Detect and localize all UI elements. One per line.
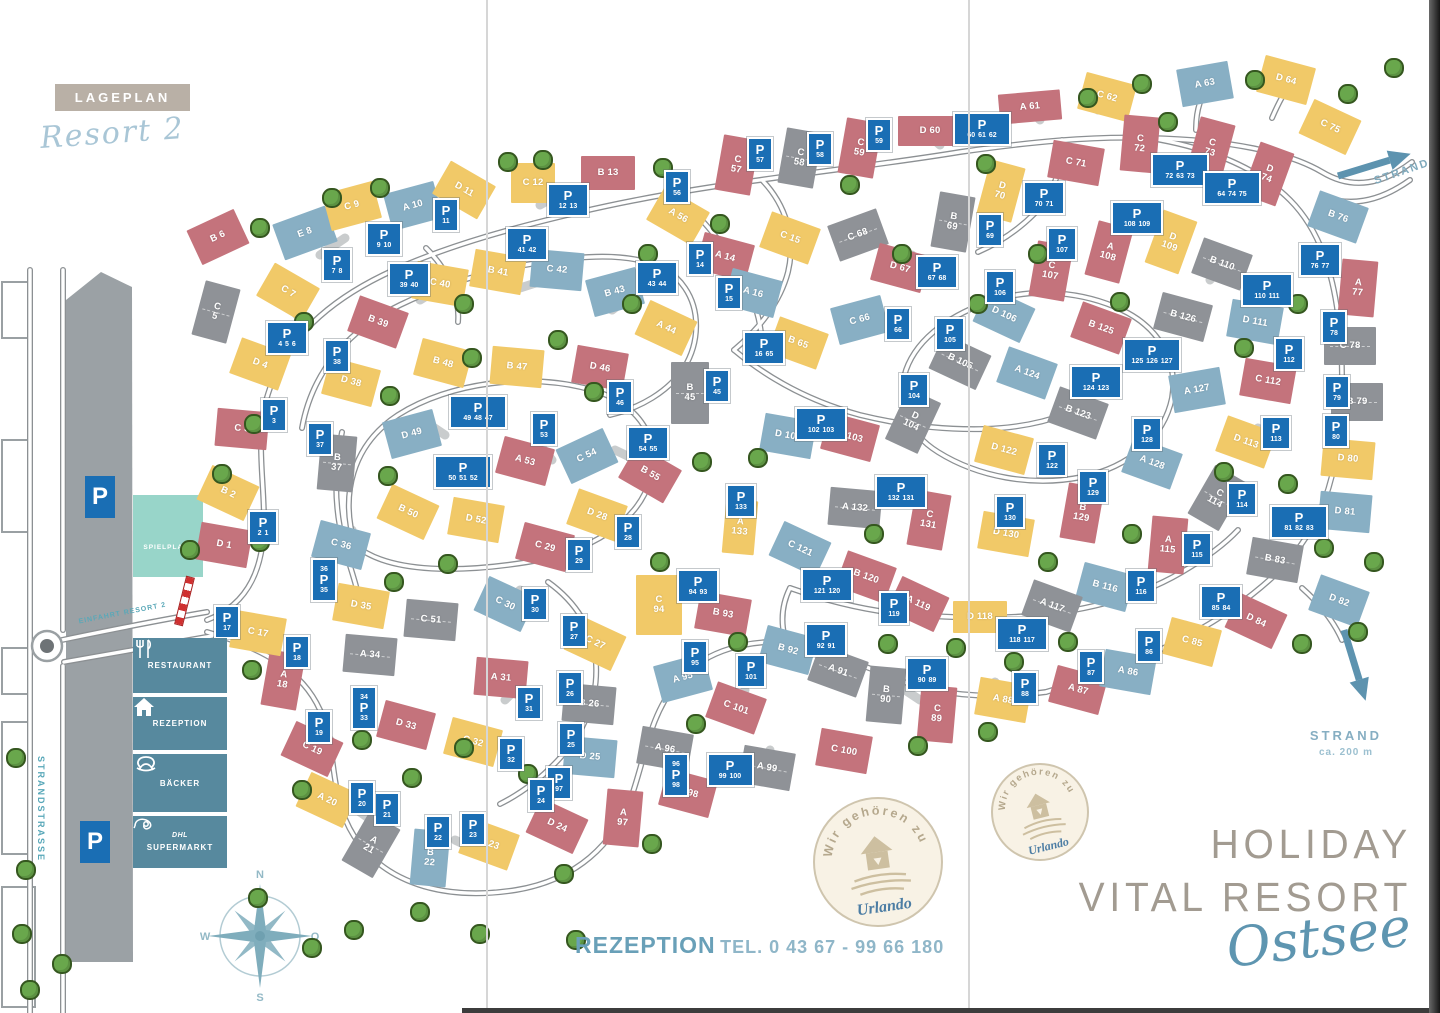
- street-label: STRANDSTRASSE: [36, 756, 46, 862]
- tree-icon: [1110, 292, 1130, 312]
- parking-sign-9-10: P9 10: [366, 222, 402, 256]
- parking-sign-118-117: P118 117: [996, 617, 1049, 651]
- tree-icon: [710, 214, 730, 234]
- parking-sign-107: P107: [1047, 227, 1078, 261]
- parking-sign-67-68: P67 68: [916, 255, 958, 289]
- tree-icon: [1278, 474, 1298, 494]
- parking-sign-119: P119: [879, 591, 910, 625]
- fold-line: [486, 0, 488, 1013]
- posthorn-icon: [133, 816, 155, 830]
- tree-icon: [1234, 338, 1254, 358]
- parking-sign-116: P116: [1126, 569, 1157, 603]
- parking-sign-108-109: P108 109: [1111, 201, 1164, 235]
- parking-sign-4-5-6: P4 5 6: [266, 321, 308, 355]
- parking-sign-22: P22: [425, 815, 451, 849]
- compass-s: S: [256, 992, 263, 1002]
- parking-sign-30: P30: [522, 587, 548, 621]
- tree-icon: [976, 154, 996, 174]
- tree-icon: [402, 768, 422, 788]
- parking-sign-57: P57: [747, 137, 773, 171]
- parking-sign-20: P20: [349, 781, 375, 815]
- tree-icon: [250, 218, 270, 238]
- parking-sign-66: P66: [885, 307, 911, 341]
- parking-sign-19: P19: [306, 710, 332, 744]
- tree-icon: [978, 722, 998, 742]
- tree-icon: [180, 540, 200, 560]
- parking-sign-26: P26: [557, 671, 583, 705]
- facility-label: RESTAURANT: [148, 661, 213, 670]
- parking-sign-28: P28: [615, 515, 641, 549]
- parking-sign-132-131: P132 131: [875, 475, 928, 509]
- parking-sign-59: P59: [866, 118, 892, 152]
- parking-sign-49-48-47: P49 48 47: [449, 395, 507, 429]
- tree-icon: [1338, 84, 1358, 104]
- building-a-97: A 97: [603, 789, 644, 848]
- tree-icon: [498, 152, 518, 172]
- parking-sign-15: P15: [716, 276, 742, 310]
- parking-sign-21: P21: [374, 792, 400, 826]
- tree-icon: [12, 924, 32, 944]
- building-a-34: A 34: [342, 634, 397, 676]
- tree-icon: [462, 348, 482, 368]
- title-line1: HOLIDAY: [1030, 818, 1412, 871]
- house-icon: [133, 697, 155, 717]
- parking-sign-124-123: P124 123: [1070, 365, 1123, 399]
- tree-icon: [1245, 70, 1265, 90]
- tree-icon: [16, 860, 36, 880]
- strand-label-bottom: STRAND ca. 200 m: [1296, 728, 1396, 758]
- tree-icon: [533, 150, 553, 170]
- parking-sign-98: 96P98: [663, 753, 689, 797]
- tree-icon: [686, 714, 706, 734]
- tree-icon: [1078, 88, 1098, 108]
- parking-sign-86: P86: [1136, 629, 1162, 663]
- strand-text: STRAND: [1296, 728, 1396, 743]
- parking-sign-39-40: P39 40: [388, 262, 430, 296]
- parking-sign-11: P11: [433, 198, 459, 232]
- parking-sign-85-84: P85 84: [1200, 585, 1242, 619]
- tree-icon: [370, 178, 390, 198]
- tree-icon: [212, 464, 232, 484]
- tree-icon: [1364, 552, 1384, 572]
- parking-sign-129: P129: [1078, 470, 1109, 504]
- building-c-89: C 89: [917, 685, 958, 744]
- tree-icon: [322, 188, 342, 208]
- facility-label: BÄCKER: [160, 779, 200, 788]
- parking-sign-105: P105: [935, 317, 966, 351]
- tree-icon: [302, 938, 322, 958]
- parking-sign-130: P130: [995, 495, 1026, 529]
- tree-icon: [1058, 632, 1078, 652]
- parking-sign-60-61-62: P60 61 62: [953, 112, 1011, 146]
- parking-sign-45: P45: [704, 369, 730, 403]
- parking-sign-78: P78: [1321, 310, 1347, 344]
- parking-sign-79: P79: [1324, 375, 1350, 409]
- page-edge: [1429, 0, 1440, 1013]
- building-c-51: C 51: [403, 599, 458, 641]
- parking-sign-72-63-73: P72 63 73: [1151, 153, 1209, 187]
- parking-sign-104: P104: [899, 373, 930, 407]
- fold-line: [968, 0, 970, 1013]
- parking-sign-50-51-52: P50 51 52: [434, 455, 492, 489]
- parking-sign-125-126-127: P125 126 127: [1123, 338, 1181, 372]
- tree-icon: [1384, 58, 1404, 78]
- parking-sign-128: P128: [1132, 417, 1163, 451]
- tree-icon: [454, 294, 474, 314]
- parking-sign-58: P58: [807, 132, 833, 166]
- facility-label: REZEPTION: [153, 719, 208, 728]
- tree-icon: [892, 244, 912, 264]
- parking-sign-18: P18: [284, 635, 310, 669]
- tree-icon: [584, 382, 604, 402]
- parking-sign-41-42: P41 42: [506, 227, 548, 261]
- tree-icon: [692, 452, 712, 472]
- parking-sign-64-74-75: P64 74 75: [1203, 171, 1261, 205]
- tree-icon: [748, 448, 768, 468]
- parking-sign-133: P133: [726, 484, 757, 518]
- tree-icon: [946, 638, 966, 658]
- tree-icon: [1038, 552, 1058, 572]
- parking-sign-101: P101: [736, 654, 767, 688]
- compass-n: N: [256, 869, 264, 881]
- parking-sign-14: P14: [687, 242, 713, 276]
- tree-icon: [622, 294, 642, 314]
- facility-restaurant: RESTAURANT: [133, 638, 227, 693]
- facility-label: SUPERMARKT: [147, 843, 213, 852]
- parking-sign-99-100: P99 100: [707, 753, 754, 787]
- dhl-logo: DHL: [172, 832, 188, 839]
- tree-icon: [1028, 244, 1048, 264]
- tree-icon: [840, 175, 860, 195]
- parking-sign-95: P95: [682, 640, 708, 674]
- pretzel-icon: [133, 754, 159, 774]
- parking-sign-113: P113: [1261, 416, 1292, 450]
- tree-icon: [554, 864, 574, 884]
- parking-sign-12-13: P12 13: [547, 183, 589, 217]
- contact-phone: TEL. 0 43 67 - 99 66 180: [720, 937, 944, 957]
- tree-icon: [52, 954, 72, 974]
- facility-baecker: BÄCKER: [133, 754, 227, 812]
- tree-icon: [352, 730, 372, 750]
- restaurant-icon: [133, 638, 155, 660]
- parking-sign-115: P115: [1182, 532, 1213, 566]
- parking-sign-94-93: P94 93: [677, 569, 719, 603]
- parking-sign-114: P114: [1227, 482, 1258, 516]
- parking-sign-76-77: P76 77: [1299, 243, 1341, 277]
- tree-icon: [378, 466, 398, 486]
- tree-icon: [864, 524, 884, 544]
- tree-icon: [410, 902, 430, 922]
- parking-sign-92-91: P92 91: [805, 623, 847, 657]
- parking-sign-32: P32: [498, 737, 524, 771]
- tree-icon: [454, 738, 474, 758]
- tree-icon: [292, 780, 312, 800]
- parking-sign-53: P53: [531, 412, 557, 446]
- tree-icon: [6, 748, 26, 768]
- facility-supermarkt: DHL SUPERMARKT: [133, 816, 227, 868]
- parking-sign-38: P38: [324, 339, 350, 373]
- parking-sign-29: P29: [566, 538, 592, 572]
- tree-icon: [1132, 74, 1152, 94]
- tree-icon: [380, 386, 400, 406]
- page-edge: [462, 1008, 1429, 1013]
- parking-sign-90-89: P90 89: [906, 657, 948, 691]
- tree-icon: [1004, 652, 1024, 672]
- building-c-94: C 94: [636, 575, 682, 635]
- tree-icon: [438, 554, 458, 574]
- parking-sign-25: P25: [558, 722, 584, 756]
- contact-label: REZEPTION: [575, 932, 716, 958]
- parking-sign-24: P24: [528, 778, 554, 812]
- building-a-77: A 77: [1338, 259, 1379, 318]
- tree-icon: [1158, 112, 1178, 132]
- parking-lot-sign: P: [80, 821, 110, 863]
- parking-sign-112: P112: [1274, 337, 1305, 371]
- parking-sign-69: P69: [977, 213, 1003, 247]
- parking-sign-2-1: P2 1: [248, 510, 279, 544]
- lageplan-banner: LAGEPLAN: [55, 84, 190, 111]
- tree-icon: [1214, 462, 1234, 482]
- parking-sign-80: P80: [1323, 414, 1349, 448]
- parking-sign-56: P56: [664, 170, 690, 204]
- parking-sign-81-82-83: P81 82 83: [1270, 505, 1328, 539]
- strand-distance: ca. 200 m: [1296, 747, 1396, 758]
- parking-sign-31: P31: [516, 686, 542, 720]
- parking-sign-88: P88: [1012, 671, 1038, 705]
- parking-sign-106: P106: [985, 270, 1016, 304]
- parking-sign-17: P17: [214, 605, 240, 639]
- parking-sign-23: P23: [460, 812, 486, 846]
- tree-icon: [1122, 524, 1142, 544]
- parking-sign-54-55: P54 55: [627, 426, 669, 460]
- parking-sign-46: P46: [607, 380, 633, 414]
- compass-w: W: [200, 931, 211, 943]
- parking-sign-3: P3: [261, 398, 287, 432]
- tree-icon: [642, 834, 662, 854]
- parking-sign-35: 36P35: [311, 558, 337, 602]
- parking-sign-70-71: P70 71: [1023, 181, 1065, 215]
- tree-icon: [1314, 538, 1334, 558]
- reception-contact: REZEPTION TEL. 0 43 67 - 99 66 180: [575, 932, 944, 959]
- spielplatz-area: SPIELPLATZ: [133, 495, 203, 577]
- parking-sign-121-120: P121 120: [801, 568, 854, 602]
- tree-icon: [548, 330, 568, 350]
- building-b-90: B 90: [866, 666, 907, 725]
- resort-site-map: LAGEPLAN Resort 2 SPIELPLATZ RESTAURANT …: [0, 0, 1440, 1013]
- parking-sign-110-111: P110 111: [1241, 273, 1294, 307]
- building-b-47: B 47: [489, 346, 544, 388]
- parking-sign-43-44: P43 44: [636, 261, 678, 295]
- tree-icon: [908, 736, 928, 756]
- tree-icon: [242, 660, 262, 680]
- parking-sign-122: P122: [1037, 443, 1068, 477]
- parking-sign-16-65: P16 65: [743, 331, 785, 365]
- parking-sign-37: P37: [307, 422, 333, 456]
- tree-icon: [1348, 622, 1368, 642]
- tree-icon: [1292, 634, 1312, 654]
- parking-sign-7-8: P7 8: [322, 248, 353, 282]
- tree-icon: [878, 634, 898, 654]
- tree-icon: [344, 920, 364, 940]
- tree-icon: [650, 552, 670, 572]
- parking-sign-102-103: P102 103: [795, 407, 848, 441]
- tree-icon: [384, 572, 404, 592]
- urlando-badge-large: Wir gehören zu Urlando: [808, 792, 948, 932]
- building-b-13: B 13: [581, 156, 635, 190]
- parking-lot-sign: P: [85, 476, 115, 518]
- facility-rezeption: REZEPTION: [133, 697, 227, 750]
- tree-icon: [248, 888, 268, 908]
- parking-sign-27: P27: [561, 614, 587, 648]
- parking-sign-87: P87: [1078, 650, 1104, 684]
- parking-sign-33: 34P33: [351, 686, 377, 730]
- tree-icon: [728, 632, 748, 652]
- tree-icon: [20, 980, 40, 1000]
